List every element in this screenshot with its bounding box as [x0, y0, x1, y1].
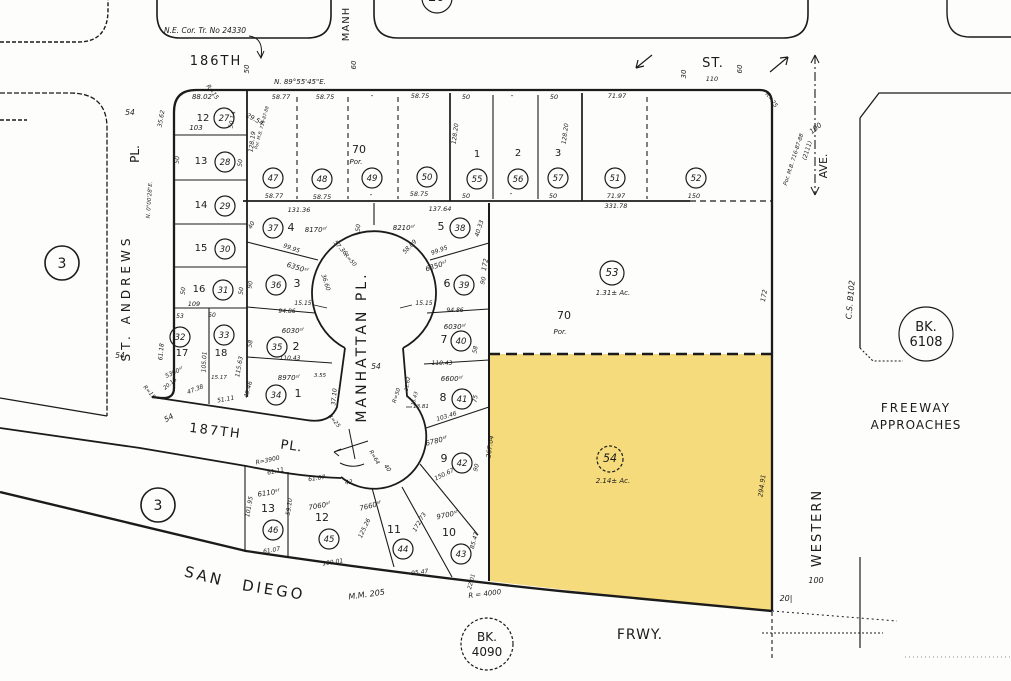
parcel-circle-35: 35: [267, 337, 287, 357]
parcel-circle-49: 49: [362, 168, 382, 188]
dimension-label: 50: [462, 192, 470, 200]
ref-bk-6108-a: BK.: [915, 320, 937, 335]
dimension-label: 331.78: [605, 202, 628, 210]
street-187th: 187TH: [188, 421, 242, 442]
dimension-label: R=25: [327, 414, 342, 430]
area-54: 2.14± Ac.: [596, 477, 631, 485]
circle-number: 57: [553, 174, 564, 184]
dimension-label: 6030ˢᶠ: [444, 323, 467, 331]
circle-number: 30: [220, 245, 231, 255]
lot-70-label: 70: [352, 143, 366, 156]
dimension-label: 50: [174, 156, 182, 164]
dimension-label: 90: [479, 276, 488, 285]
parcel-circle-37: 37: [263, 218, 283, 238]
note-freeway-2: APPROACHES: [871, 418, 962, 432]
dimension-label: ″: [370, 193, 373, 201]
dimension-label: R=3900: [255, 455, 281, 467]
dimension-label: 103: [189, 124, 202, 132]
parcel-circle-51: 51: [605, 168, 625, 188]
street-187th-pl: PL.: [279, 438, 303, 456]
lot-17: 17: [176, 348, 189, 359]
lot-13-south: 13: [261, 502, 275, 515]
parcel-circle-48: 48: [312, 169, 332, 189]
dimension-label: 110.43: [280, 355, 301, 362]
lot-14: 14: [195, 200, 208, 211]
dimension-label: 54: [115, 351, 125, 360]
circle-number: 50: [422, 173, 433, 183]
dimension-label: (2111): [801, 140, 814, 161]
dimension-label: 59.10: [285, 498, 294, 516]
dimension-label: 9700ˢᶠ: [436, 509, 460, 522]
dimension-label: 8170ˢᶠ: [305, 226, 328, 234]
dimension-label: 35.62: [157, 109, 167, 127]
dimension-label: 131.36: [288, 206, 311, 214]
dimension-label: 125.26: [357, 517, 372, 539]
dimension-label: 115.63: [234, 356, 245, 378]
parcel-circle-42: 42: [452, 453, 472, 473]
circle-number: 37: [268, 224, 279, 234]
ref-mm-205: M.M. 205: [348, 588, 386, 602]
circle-number: 47: [268, 174, 279, 184]
lot-13: 13: [195, 156, 208, 167]
dimension-label: 40: [247, 220, 257, 230]
dimension-label: 58.75: [411, 92, 430, 100]
dimension-label: 50: [549, 192, 557, 200]
lot-8: 8: [440, 391, 447, 404]
area-53: 1.31± Ac.: [596, 289, 631, 297]
dimension-label: 58.77: [265, 192, 284, 200]
dimension-label: 49.46: [243, 380, 254, 399]
lot-9: 9: [441, 452, 448, 465]
street-186th-st: ST.: [702, 56, 724, 71]
dimension-label: 61.07: [308, 474, 326, 483]
street-western: WESTERN: [810, 489, 825, 567]
street-manhattan-north: MANH: [341, 7, 352, 41]
dimension-label: 71.97: [608, 92, 627, 100]
dimension-label: 60: [736, 64, 744, 73]
parcel-circle-55: 55: [467, 169, 487, 189]
dimension-label: 50: [462, 93, 470, 101]
parcel-circle-28: 28: [215, 152, 235, 172]
circle-number: 39: [459, 281, 470, 291]
parcel-circle-47: 47: [263, 168, 283, 188]
dimension-label: 105.01: [200, 351, 208, 372]
dimension-label: 40.33: [474, 219, 486, 238]
dimension-label: 100: [808, 121, 824, 136]
curve-data-spider: [334, 429, 368, 466]
dimension-label: 110: [706, 75, 718, 83]
dimension-label: 128.20: [561, 123, 571, 145]
dimension-label: 6780ˢᶠ: [425, 434, 449, 447]
street-line: [947, 0, 1011, 37]
parcel-circle-31: 31: [213, 280, 233, 300]
ref-cs-b102: C.S. B102: [844, 280, 856, 320]
dimension-label: 150: [688, 192, 700, 200]
dimension-label: 20.18: [162, 377, 178, 392]
street-st-andrews-pl: PL.: [128, 145, 142, 163]
note-ne-cor: N.E. Cor. Tr. No 24330: [164, 26, 246, 35]
lot-18: 18: [215, 348, 228, 359]
dimension-label: 150.67: [433, 467, 455, 483]
street-manhattan-pl: MANHATTAN PL.: [354, 271, 370, 422]
parcel-circle-38: 38: [450, 218, 470, 238]
lot-1-mid: 1: [295, 387, 302, 400]
circle-number: 36: [271, 281, 282, 291]
parcel-circle-20: 20: [422, 0, 452, 13]
street-line: [374, 0, 808, 38]
circle-number: 44: [398, 545, 409, 555]
dimension-label: 6110ˢᶠ: [257, 487, 280, 498]
lot-16: 16: [193, 284, 206, 295]
street-st-andrews: ST. ANDREWS: [119, 235, 133, 362]
street-san-diego-1: SAN: [182, 563, 225, 590]
parcel-circle-44: 44: [393, 539, 413, 559]
dimension-label: 13.81: [413, 404, 429, 410]
dimension-label: 54: [371, 362, 381, 371]
lot-12: 12: [197, 113, 210, 124]
dimension-label: 71.97: [607, 192, 626, 200]
circle-number: 48: [317, 175, 328, 185]
parcel-circle-40: 40: [451, 331, 471, 351]
lot-10: 10: [442, 526, 456, 539]
dimension-label: 101.95: [244, 496, 255, 518]
ref-bk-6108-b: 6108: [909, 335, 942, 350]
street-line: [0, 0, 108, 42]
circle-number: 27: [219, 114, 230, 124]
dimension-label: ″: [510, 192, 513, 200]
highlighted-parcel-54: [489, 354, 772, 611]
dimension-label: Por.: [554, 328, 567, 336]
street-line: [860, 93, 1011, 348]
parcel-circle-3: 3: [141, 488, 175, 522]
parcel-circle-56: 56: [508, 169, 528, 189]
dimension-label: 50: [238, 287, 246, 295]
dimension-label: 20|: [780, 594, 793, 603]
street-line-freeway-ext: [772, 611, 897, 621]
dimension-label: 58.75: [316, 93, 335, 101]
circle-number: 54: [603, 452, 617, 465]
dimension-label: 100.01: [322, 557, 344, 567]
circle-number: 32: [175, 333, 186, 343]
lot-70-por-right: 70: [557, 309, 571, 322]
parcel-circle-29: 29: [215, 196, 235, 216]
dimension-label: ″: [511, 94, 514, 102]
dimension-label: 61.07: [263, 546, 281, 556]
dimension-label: 61.11: [267, 466, 285, 476]
dimension-label: 50: [355, 224, 363, 232]
dimension-label: 58.75: [313, 193, 332, 201]
lot-7: 7: [441, 333, 448, 346]
circle-number: 42: [457, 459, 468, 469]
parcel-circle-36: 36: [266, 275, 286, 295]
circle-number: 53: [606, 268, 619, 279]
parcel-circle-3: 3: [45, 246, 79, 280]
leader-arrow-ne-cor: [249, 36, 264, 58]
circle-number: 51: [610, 174, 621, 184]
dimension-label: 60: [350, 60, 358, 69]
lot-2-top: 2: [515, 148, 521, 159]
circle-number: 38: [455, 224, 466, 234]
dimension-label: 137.64: [429, 205, 452, 213]
note-freeway-1: FREEWAY: [881, 401, 951, 415]
dimension-label: 54: [125, 108, 135, 117]
dimension-label: 90: [472, 463, 481, 472]
dimension-label: 8210ˢᶠ: [393, 224, 416, 232]
parcel-circle-33: 33: [214, 325, 234, 345]
parcel-circle-50: 50: [417, 167, 437, 187]
dimension-label: 42: [345, 479, 353, 487]
dimension-label: 15.17: [211, 375, 227, 381]
parcel-circle-34: 34: [266, 385, 286, 405]
circle-number: 46: [268, 526, 279, 536]
bearing-north-line: N. 89°55'45"E.: [274, 78, 326, 86]
dimension-label: 50: [237, 159, 245, 167]
lot-11: 11: [387, 523, 401, 536]
dimension-label: 75: [471, 394, 479, 403]
circle-number: 40: [456, 337, 467, 347]
lot-6: 6: [444, 277, 451, 290]
dimension-label: 36.60: [319, 273, 331, 292]
bearing-west-line: N. 0°00'28"E.: [146, 181, 155, 219]
circle-number: 28: [220, 158, 231, 168]
ref-bk-4090-b: 4090: [472, 645, 503, 659]
street-line: [860, 348, 903, 361]
dimension-label: 47.38: [186, 383, 205, 396]
circle-number: 52: [691, 174, 702, 184]
dimension-label: 30: [680, 69, 688, 78]
parcel-circle-39: 39: [454, 275, 474, 295]
dimension-label: 100: [808, 576, 823, 585]
ref-bk-4090-a: BK.: [477, 630, 497, 644]
dimension-label: 15.15: [415, 300, 432, 307]
lot-2-mid: 2: [293, 340, 300, 353]
lot-3-top: 3: [555, 148, 561, 159]
book-circle: [461, 618, 513, 670]
dimension-label: 110.43: [432, 360, 453, 367]
dimension-label: R=50: [342, 253, 357, 269]
dimension-label: 88.02: [192, 93, 213, 101]
circle-number: 49: [367, 174, 378, 184]
dimension-label: 15.15: [294, 300, 311, 307]
dimension-label: Por. M.B. 716-87-88: [253, 105, 270, 149]
circle-number: 41: [457, 395, 468, 405]
parcel-circle-52: 52: [686, 168, 706, 188]
street-san-diego-2: DIEGO: [241, 576, 307, 604]
dimension-label: 58: [246, 339, 254, 348]
dimension-label: 54: [162, 411, 175, 424]
street-western-ave: AVE.: [817, 154, 830, 179]
parcel-circle-30: 30: [215, 239, 235, 259]
dimension-label: 8970ˢᶠ: [278, 374, 301, 382]
street-frwy: FRWY.: [617, 627, 663, 643]
dimension-label: 58: [471, 345, 479, 354]
dimension-label: 6600ˢᶠ: [441, 375, 464, 383]
parcel-circle-41: 41: [452, 389, 472, 409]
lot-1-top: 1: [474, 149, 480, 160]
circle-number: 45: [324, 535, 335, 545]
dimension-label: 31.62: [404, 376, 412, 391]
lot-5: 5: [438, 220, 445, 233]
dimension-label: 172: [759, 289, 769, 303]
street-line: [0, 93, 107, 416]
circle-number: 31: [218, 286, 229, 296]
assessor-plat-map: N.E. Cor. Tr. No 24330186TH5060ST.301106…: [0, 0, 1011, 681]
lot-3-mid: 3: [294, 277, 301, 290]
parcel-circle-46: 46: [263, 520, 283, 540]
dimension-label: 53: [176, 313, 184, 320]
map-canvas: N.E. Cor. Tr. No 24330186TH5060ST.301106…: [0, 0, 1011, 681]
dimension-label: 50: [180, 287, 188, 295]
parcel-circle-53: 53: [600, 261, 624, 285]
dimension-label: 90: [246, 280, 254, 289]
north-arrow-right: [770, 57, 788, 72]
dimension-label: R = 4000: [468, 588, 502, 600]
dimension-label: R=50: [392, 387, 403, 404]
circle-number: 20: [429, 0, 445, 5]
dimension-label: 58.75: [410, 190, 429, 198]
circle-number: 43: [456, 550, 467, 560]
dimension-label: 61.18: [157, 343, 165, 361]
circle-number: 3: [58, 256, 67, 272]
circle-number: 56: [513, 175, 524, 185]
street-line-187th-nw: [0, 398, 107, 416]
lot-15: 15: [195, 243, 208, 254]
dimension-label: 94.86: [278, 308, 295, 315]
dimension-label: Por.: [350, 158, 363, 166]
dimension-label: 50: [243, 64, 251, 73]
circle-number: 29: [220, 202, 231, 212]
circle-number: 55: [472, 175, 483, 185]
circle-number: 35: [272, 343, 283, 353]
dimension-label: 85.47: [469, 531, 480, 550]
dimension-label: 6030ˢᶠ: [282, 327, 305, 335]
dimension-label: 94.86: [446, 307, 463, 314]
dimension-label: 50: [208, 312, 216, 319]
lot-4: 4: [288, 221, 295, 234]
dimension-label: 51.11: [217, 395, 235, 405]
circle-number: 33: [219, 331, 230, 341]
dimension-label: 6350ˢᶠ: [286, 261, 310, 276]
dimension-label: 128.20: [451, 123, 461, 145]
parcel-circle-43: 43: [451, 544, 471, 564]
dimension-label: 3.55: [314, 373, 327, 379]
lot-12-south: 12: [315, 511, 329, 524]
dimension-label: ″: [371, 94, 374, 102]
dimension-label: 58.77: [272, 93, 291, 101]
circle-outline: [461, 618, 513, 670]
circle-number: 34: [271, 391, 282, 401]
dimension-label: R=64: [367, 449, 380, 466]
street-186th: 186TH: [190, 54, 243, 69]
circle-number: 3: [154, 498, 163, 514]
parcel-circle-57: 57: [548, 168, 568, 188]
parcel-circle-45: 45: [319, 529, 339, 549]
dimension-label: 40: [382, 463, 392, 473]
dimension-label: 109: [188, 300, 200, 308]
dimension-label: 50: [550, 93, 558, 101]
north-arrow-left: [636, 55, 652, 68]
lot-line: [245, 407, 489, 577]
